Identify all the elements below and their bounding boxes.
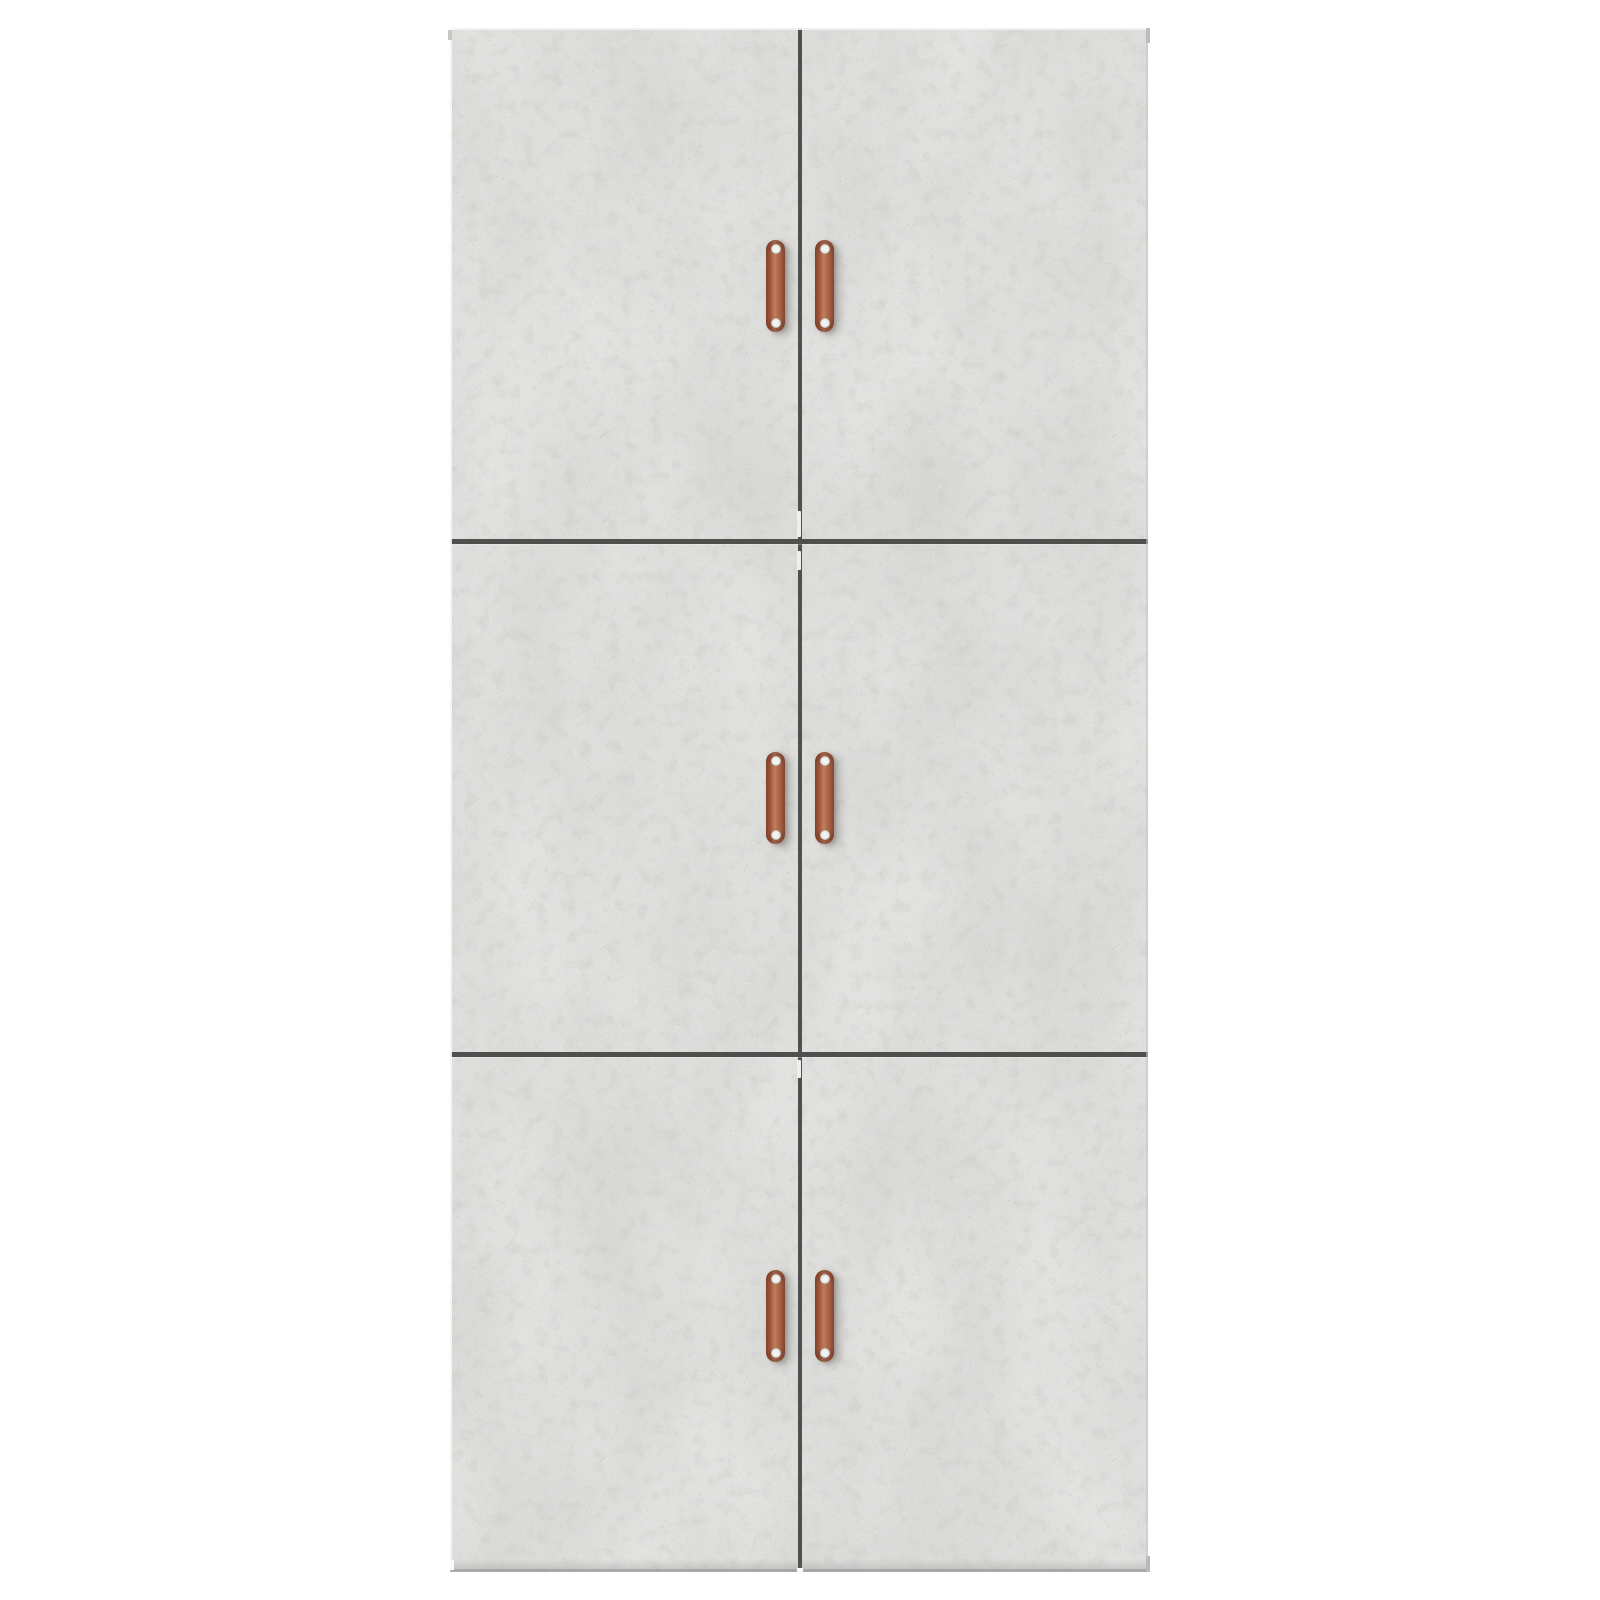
cabinet xyxy=(450,28,1148,1572)
door-bottom-right[interactable] xyxy=(803,1057,1148,1572)
handle-middle-left[interactable] xyxy=(766,752,785,844)
handle-bottom-left[interactable] xyxy=(766,1270,785,1362)
screw-icon xyxy=(771,1274,781,1284)
screw-icon xyxy=(771,830,781,840)
product-photo xyxy=(0,0,1600,1600)
screw-icon xyxy=(820,1274,830,1284)
screw-icon xyxy=(820,1348,830,1358)
door-middle-right[interactable] xyxy=(803,544,1148,1052)
door-bottom-left[interactable] xyxy=(450,1057,799,1572)
handle-top-left[interactable] xyxy=(766,240,785,332)
screw-icon xyxy=(771,1348,781,1358)
handle-middle-right[interactable] xyxy=(815,752,834,844)
door-middle-left[interactable] xyxy=(450,544,799,1052)
handle-top-right[interactable] xyxy=(815,240,834,332)
screw-icon xyxy=(771,244,781,254)
screw-icon xyxy=(771,318,781,328)
screw-icon xyxy=(771,756,781,766)
screw-icon xyxy=(820,830,830,840)
door-top-right[interactable] xyxy=(803,28,1148,539)
screw-icon xyxy=(820,756,830,766)
screw-icon xyxy=(820,244,830,254)
handle-bottom-right[interactable] xyxy=(815,1270,834,1362)
door-top-left[interactable] xyxy=(450,28,799,539)
screw-icon xyxy=(820,318,830,328)
